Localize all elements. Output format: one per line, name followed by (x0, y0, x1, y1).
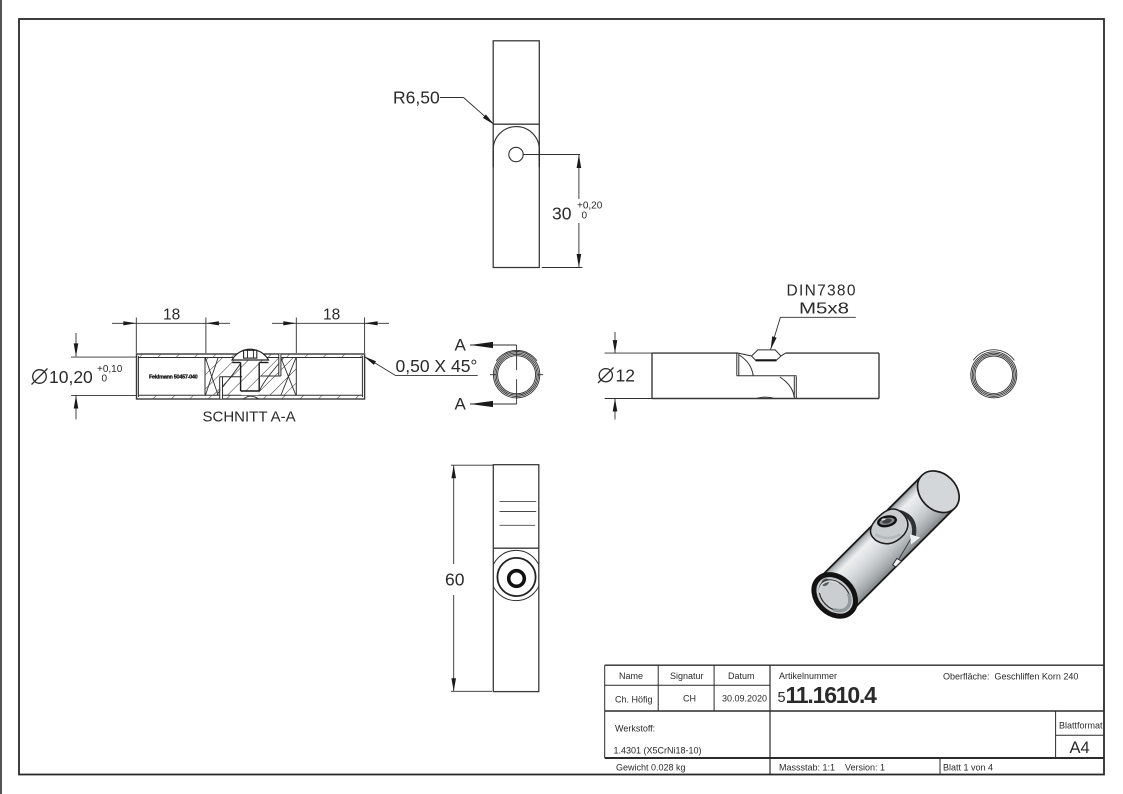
svg-text:Datum: Datum (728, 671, 755, 681)
svg-text:DIN7380: DIN7380 (787, 283, 857, 300)
svg-text:5: 5 (778, 690, 786, 706)
svg-text:Name: Name (619, 671, 643, 681)
svg-text:Blatt 1 von 4: Blatt 1 von 4 (943, 763, 993, 773)
svg-text:CH: CH (683, 694, 696, 704)
svg-text:0: 0 (582, 211, 588, 222)
svg-text:Version: 1: Version: 1 (845, 763, 885, 773)
svg-text:1.4301 (X5CrNi18-10): 1.4301 (X5CrNi18-10) (614, 746, 702, 756)
svg-text:A: A (455, 395, 467, 414)
svg-text:Oberfläche: Geschliffen Korn: Oberfläche: Geschliffen Korn 240 (943, 672, 1078, 682)
svg-text:Feldmann 50457-040: Feldmann 50457-040 (149, 375, 198, 381)
svg-text:Artikelnummer: Artikelnummer (779, 671, 837, 681)
svg-text:10,20: 10,20 (49, 367, 93, 387)
svg-text:18: 18 (323, 307, 340, 324)
svg-text:Gewicht 0.028 kg: Gewicht 0.028 kg (616, 763, 686, 773)
svg-text:18: 18 (163, 307, 180, 324)
svg-text:11.1610.4: 11.1610.4 (786, 682, 878, 708)
svg-text:30: 30 (552, 204, 572, 224)
svg-text:0,50 X 45°: 0,50 X 45° (396, 356, 478, 376)
svg-text:12: 12 (616, 366, 635, 386)
svg-text:Ch. Höfig: Ch. Höfig (615, 695, 653, 705)
svg-text:A: A (455, 336, 467, 355)
svg-text:M5x8: M5x8 (799, 301, 849, 318)
svg-text:Blattformat: Blattformat (1059, 721, 1103, 731)
svg-text:A4: A4 (1070, 739, 1090, 757)
svg-text:Werkstoff:: Werkstoff: (615, 724, 655, 734)
svg-text:30.09.2020: 30.09.2020 (722, 694, 767, 704)
svg-text:60: 60 (445, 570, 465, 590)
svg-text:Massstab: 1:1: Massstab: 1:1 (779, 763, 835, 773)
svg-text:SCHNITT A-A: SCHNITT A-A (203, 409, 296, 426)
svg-text:R6,50: R6,50 (393, 88, 440, 108)
svg-text:Signatur: Signatur (670, 671, 704, 681)
svg-text:0: 0 (102, 374, 108, 385)
